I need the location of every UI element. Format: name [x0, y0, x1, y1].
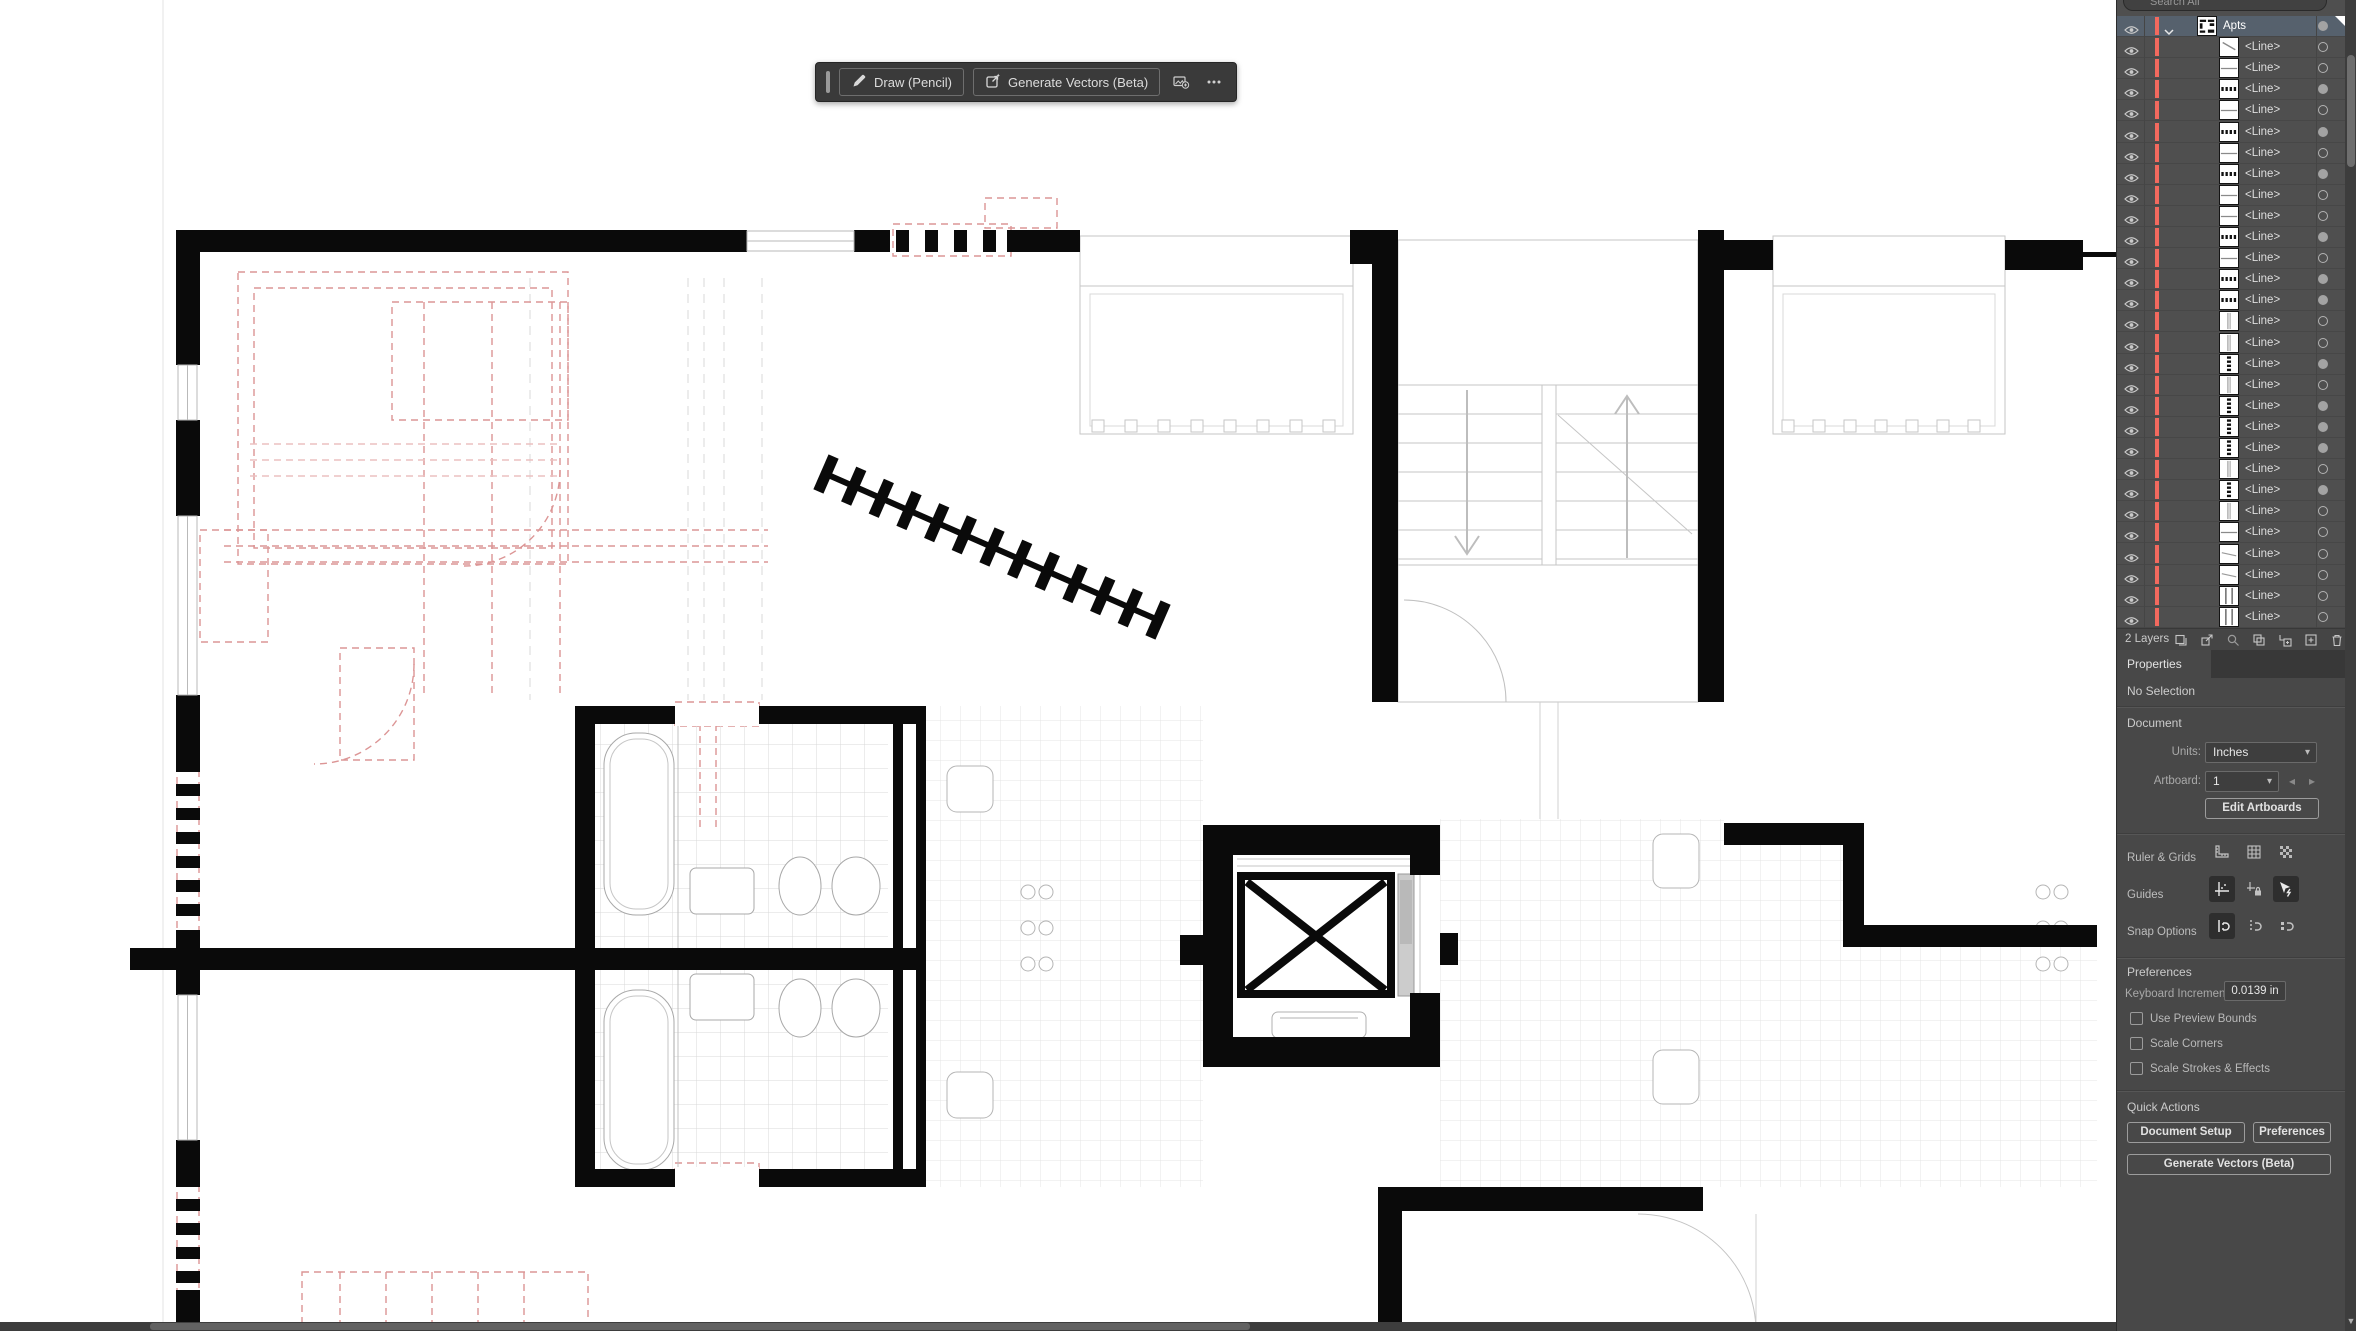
- add-image-icon[interactable]: [1169, 69, 1193, 95]
- collect-for-export-icon[interactable]: [2173, 632, 2189, 648]
- layer-color-bar: [2155, 439, 2159, 457]
- draw-pencil-button[interactable]: Draw (Pencil): [839, 68, 964, 96]
- layer-row[interactable]: <Line>: [2117, 354, 2345, 375]
- canvas-hscrollbar-track[interactable]: [0, 1322, 2116, 1331]
- layer-name[interactable]: <Line>: [2245, 231, 2280, 243]
- layer-color-bar: [2155, 418, 2159, 436]
- layer-color-bar: [2155, 376, 2159, 394]
- layer-target-circle[interactable]: [2318, 84, 2328, 94]
- layer-target-circle[interactable]: [2318, 485, 2328, 495]
- layer-target-circle[interactable]: [2318, 253, 2328, 263]
- edit-artboards-button[interactable]: Edit Artboards: [2205, 798, 2319, 819]
- layer-thumbnail[interactable]: [2219, 459, 2239, 479]
- layer-color-bar: [2155, 523, 2159, 541]
- layer-row[interactable]: <Line>: [2117, 522, 2345, 543]
- layer-name[interactable]: <Line>: [2245, 442, 2280, 454]
- layer-target-circle[interactable]: [2318, 42, 2328, 52]
- layer-target-circle[interactable]: [2318, 169, 2328, 179]
- layer-row[interactable]: <Line>: [2117, 269, 2345, 290]
- more-options-icon[interactable]: [1202, 69, 1226, 95]
- use-preview-bounds-label: Use Preview Bounds: [2150, 1013, 2257, 1025]
- toolbar-drag-handle[interactable]: [826, 71, 830, 93]
- corridor-door: [1638, 1214, 1756, 1331]
- layer-color-bar: [2155, 144, 2159, 162]
- prev-artboard-icon[interactable]: ◂: [2289, 774, 2295, 788]
- layer-row-apts[interactable]: Apts: [2117, 16, 2345, 37]
- layer-name[interactable]: <Line>: [2245, 147, 2280, 159]
- layer-thumbnail[interactable]: [2219, 586, 2239, 606]
- layer-row[interactable]: <Line>: [2117, 375, 2345, 396]
- layer-name[interactable]: <Line>: [2245, 421, 2280, 433]
- layer-color-bar: [2155, 608, 2159, 626]
- snap-to-pixel-icon[interactable]: [2273, 913, 2299, 939]
- layer-thumbnail[interactable]: [2219, 37, 2239, 57]
- units-select[interactable]: Inches▾: [2205, 742, 2317, 763]
- generate-vectors-quick-button[interactable]: Generate Vectors (Beta): [2127, 1154, 2331, 1175]
- document-setup-button[interactable]: Document Setup: [2127, 1122, 2245, 1143]
- scale-strokes-effects-label: Scale Strokes & Effects: [2150, 1063, 2270, 1075]
- guides-label: Guides: [2127, 889, 2163, 901]
- layer-color-bar: [2155, 502, 2159, 520]
- pencil-icon: [851, 73, 867, 92]
- layer-name[interactable]: <Line>: [2245, 189, 2280, 201]
- layer-row[interactable]: <Line>: [2117, 438, 2345, 459]
- snap-options-label: Snap Options: [2127, 926, 2197, 938]
- layer-target-circle[interactable]: [2318, 316, 2328, 326]
- layer-target-circle[interactable]: [2318, 232, 2328, 242]
- tab-properties[interactable]: Properties: [2117, 650, 2211, 678]
- layer-row[interactable]: <Line>: [2117, 248, 2345, 269]
- underlay-gray-dashed: [530, 278, 762, 700]
- layer-row[interactable]: <Line>: [2117, 396, 2345, 417]
- layer-row[interactable]: <Line>: [2117, 586, 2345, 607]
- delete-icon[interactable]: [2329, 632, 2345, 648]
- layer-target-circle[interactable]: [2318, 612, 2328, 622]
- draw-pencil-label: Draw (Pencil): [874, 75, 952, 90]
- panel-tabstrip: Properties: [2117, 650, 2356, 678]
- layer-color-bar: [2155, 186, 2159, 204]
- layer-row[interactable]: <Line>: [2117, 459, 2345, 480]
- layer-target-circle[interactable]: [2318, 380, 2328, 390]
- lock-guides-icon[interactable]: [2241, 876, 2267, 902]
- layer-color-bar: [2155, 397, 2159, 415]
- layer-thumbnail[interactable]: [2219, 375, 2239, 395]
- chevron-down-icon: ▾: [2267, 772, 2272, 791]
- selection-status: No Selection: [2127, 684, 2195, 698]
- right-panel: Search All Apts<Line><Line><Line><Line><…: [2116, 0, 2356, 1331]
- layer-target-circle[interactable]: [2318, 591, 2328, 601]
- next-artboard-icon[interactable]: ▸: [2309, 774, 2315, 788]
- keyboard-increment-label: Keyboard Increment:: [2125, 988, 2232, 1000]
- layer-name[interactable]: <Line>: [2245, 379, 2280, 391]
- ruler-grids-label: Ruler & Grids: [2127, 852, 2196, 864]
- layer-color-bar: [2155, 101, 2159, 119]
- layer-name[interactable]: <Line>: [2245, 273, 2280, 285]
- layers-search-input[interactable]: Search All: [2123, 0, 2327, 11]
- layer-thumbnail[interactable]: [2219, 58, 2239, 78]
- new-layer-icon[interactable]: [2303, 632, 2319, 648]
- properties-panel: No Selection Document Units: Inches▾ Art…: [2117, 678, 2356, 1331]
- stairwell: [1398, 240, 1698, 819]
- layer-target-circle[interactable]: [2318, 401, 2328, 411]
- use-preview-bounds-checkbox[interactable]: [2130, 1012, 2143, 1025]
- stair-direction-arrows: [1455, 390, 1639, 558]
- layer-color-bar: [2155, 59, 2159, 77]
- layer-row[interactable]: <Line>: [2117, 100, 2345, 121]
- quick-actions-title: Quick Actions: [2127, 1100, 2200, 1114]
- panel-scrollbar-thumb[interactable]: [2347, 55, 2355, 167]
- layer-color-bar: [2155, 587, 2159, 605]
- layer-color-bar: [2155, 270, 2159, 288]
- draw-toolbar: Draw (Pencil) Generate Vectors (Beta): [815, 62, 1237, 102]
- layer-thumbnail[interactable]: [2219, 607, 2239, 627]
- units-label: Units:: [2117, 746, 2201, 758]
- layer-thumbnail[interactable]: [2219, 565, 2239, 585]
- artboard-label: Artboard:: [2117, 775, 2201, 787]
- layer-thumbnail[interactable]: [2219, 438, 2239, 458]
- smart-guides-icon[interactable]: [2273, 876, 2299, 902]
- layer-target-circle[interactable]: [2318, 295, 2328, 305]
- layer-thumbnail[interactable]: [2219, 248, 2239, 268]
- layer-color-bar: [2155, 165, 2159, 183]
- layer-color-bar: [2155, 566, 2159, 584]
- layer-row[interactable]: <Line>: [2117, 417, 2345, 438]
- layers-column-divider: [2144, 16, 2145, 628]
- layer-row[interactable]: <Line>: [2117, 79, 2345, 100]
- layer-row[interactable]: <Line>: [2117, 164, 2345, 185]
- layer-name[interactable]: <Line>: [2245, 168, 2280, 180]
- layer-color-bar: [2155, 481, 2159, 499]
- layer-thumbnail[interactable]: [2219, 311, 2239, 331]
- layer-target-circle[interactable]: [2318, 63, 2328, 73]
- layer-name[interactable]: <Line>: [2245, 505, 2280, 517]
- layer-row[interactable]: <Line>: [2117, 227, 2345, 248]
- layer-thumbnail[interactable]: [2219, 417, 2239, 437]
- layer-color-bar: [2155, 17, 2159, 35]
- layer-thumbnail[interactable]: [2219, 354, 2239, 374]
- layer-row[interactable]: <Line>: [2117, 607, 2345, 628]
- layer-row[interactable]: <Line>: [2117, 311, 2345, 332]
- layer-name[interactable]: <Line>: [2245, 252, 2280, 264]
- layers-footer: 2 Layers: [2117, 628, 2345, 651]
- scale-corners-label: Scale Corners: [2150, 1038, 2223, 1050]
- layer-color-bar: [2155, 460, 2159, 478]
- layer-thumbnail[interactable]: [2219, 143, 2239, 163]
- generate-vectors-label: Generate Vectors (Beta): [1008, 75, 1148, 90]
- layer-thumbnail[interactable]: [2219, 501, 2239, 521]
- scale-corners-checkbox[interactable]: [2130, 1037, 2143, 1050]
- layers-search-wrap: Search All: [2117, 0, 2345, 14]
- locate-object-icon[interactable]: [2225, 632, 2241, 648]
- elevator: [1233, 853, 1424, 1038]
- ruler-icon[interactable]: [2209, 839, 2235, 865]
- scale-strokes-effects-checkbox[interactable]: [2130, 1062, 2143, 1075]
- layer-thumbnail[interactable]: [2219, 122, 2239, 142]
- floor-plan-canvas[interactable]: [0, 0, 2356, 1331]
- divider: [2117, 957, 2345, 959]
- layers-column-divider: [2316, 16, 2317, 628]
- preferences-section-title: Preferences: [2127, 965, 2192, 979]
- layer-name[interactable]: <Line>: [2245, 62, 2280, 74]
- layer-name[interactable]: <Line>: [2245, 210, 2280, 222]
- layer-color-bar: [2155, 355, 2159, 373]
- layer-target-circle[interactable]: [2318, 21, 2328, 31]
- layer-row[interactable]: <Line>: [2117, 565, 2345, 586]
- layer-name[interactable]: <Line>: [2245, 104, 2280, 116]
- layer-color-bar: [2155, 545, 2159, 563]
- layer-thumbnail[interactable]: [2219, 185, 2239, 205]
- layer-color-bar: [2155, 312, 2159, 330]
- layer-target-circle[interactable]: [2318, 105, 2328, 115]
- stair-door-swing: [1404, 600, 1506, 702]
- layer-thumbnail[interactable]: [2219, 333, 2239, 353]
- layer-name[interactable]: Apts: [2223, 20, 2246, 32]
- layer-row[interactable]: <Line>: [2117, 37, 2345, 58]
- layer-name[interactable]: <Line>: [2245, 83, 2280, 95]
- layer-color-bar: [2155, 334, 2159, 352]
- layer-target-circle[interactable]: [2318, 464, 2328, 474]
- layer-count-status: 2 Layers: [2125, 633, 2169, 645]
- layer-color-bar: [2155, 207, 2159, 225]
- layer-name[interactable]: <Line>: [2245, 358, 2280, 370]
- layer-target-circle[interactable]: [2318, 549, 2328, 559]
- layer-name[interactable]: <Line>: [2245, 41, 2280, 53]
- layer-target-circle[interactable]: [2318, 148, 2328, 158]
- canvas-hscrollbar-thumb[interactable]: [150, 1323, 1250, 1330]
- layer-name[interactable]: <Line>: [2245, 315, 2280, 327]
- layer-target-circle[interactable]: [2318, 211, 2328, 221]
- layer-row[interactable]: <Line>: [2117, 544, 2345, 565]
- snap-to-grid-icon[interactable]: [2241, 913, 2267, 939]
- layer-color-bar: [2155, 249, 2159, 267]
- export-icon[interactable]: [2199, 632, 2215, 648]
- layer-name[interactable]: <Line>: [2245, 400, 2280, 412]
- make-clipping-mask-icon[interactable]: [2251, 632, 2267, 648]
- layer-name[interactable]: <Line>: [2245, 569, 2280, 581]
- layer-thumbnail[interactable]: [2197, 16, 2217, 36]
- preferences-button[interactable]: Preferences: [2253, 1122, 2331, 1143]
- layer-thumbnail[interactable]: [2219, 290, 2239, 310]
- generate-vectors-button[interactable]: Generate Vectors (Beta): [973, 68, 1160, 96]
- layer-target-circle[interactable]: [2318, 274, 2328, 284]
- layer-target-circle[interactable]: [2318, 190, 2328, 200]
- layer-thumbnail[interactable]: [2219, 480, 2239, 500]
- new-sublayer-icon[interactable]: [2277, 632, 2293, 648]
- layer-row[interactable]: <Line>: [2117, 185, 2345, 206]
- layer-name[interactable]: <Line>: [2245, 337, 2280, 349]
- layer-row[interactable]: <Line>: [2117, 206, 2345, 227]
- layer-thumbnail[interactable]: [2219, 396, 2239, 416]
- layer-row[interactable]: <Line>: [2117, 501, 2345, 522]
- current-layer-indicator: [2335, 16, 2345, 26]
- layer-name[interactable]: <Line>: [2245, 611, 2280, 623]
- layer-target-circle[interactable]: [2318, 422, 2328, 432]
- transparency-grid-icon[interactable]: [2273, 839, 2299, 865]
- document-section-title: Document: [2127, 716, 2182, 730]
- layer-target-circle[interactable]: [2318, 359, 2328, 369]
- layer-color-bar: [2155, 80, 2159, 98]
- artboard-select[interactable]: 1▾: [2205, 771, 2279, 792]
- layer-thumbnail[interactable]: [2219, 100, 2239, 120]
- layer-target-circle[interactable]: [2318, 506, 2328, 516]
- layer-color-bar: [2155, 123, 2159, 141]
- layer-color-bar: [2155, 291, 2159, 309]
- layer-row[interactable]: <Line>: [2117, 58, 2345, 79]
- layers-list: Apts<Line><Line><Line><Line><Line><Line>…: [2117, 16, 2345, 628]
- layer-row[interactable]: <Line>: [2117, 143, 2345, 164]
- scroll-down-icon[interactable]: ▼: [2345, 1312, 2356, 1331]
- layer-row[interactable]: <Line>: [2117, 290, 2345, 311]
- chevron-down-icon: ▾: [2305, 743, 2310, 762]
- layer-row[interactable]: <Line>: [2117, 480, 2345, 501]
- divider: [2117, 706, 2345, 708]
- snap-to-point-icon[interactable]: [2209, 913, 2235, 939]
- layer-name[interactable]: <Line>: [2245, 294, 2280, 306]
- divider: [2117, 833, 2345, 835]
- layer-name[interactable]: <Line>: [2245, 548, 2280, 560]
- layer-thumbnail[interactable]: [2219, 227, 2239, 247]
- layer-name[interactable]: <Line>: [2245, 526, 2280, 538]
- layer-thumbnail[interactable]: [2219, 79, 2239, 99]
- generate-vectors-icon: [985, 73, 1001, 92]
- layer-thumbnail[interactable]: [2219, 269, 2239, 289]
- layer-color-bar: [2155, 228, 2159, 246]
- layer-color-bar: [2155, 38, 2159, 56]
- layer-target-circle[interactable]: [2318, 570, 2328, 580]
- layer-row[interactable]: <Line>: [2117, 122, 2345, 143]
- grid-icon[interactable]: [2241, 839, 2267, 865]
- layer-target-circle[interactable]: [2318, 127, 2328, 137]
- panel-scrollbar-track[interactable]: [2345, 0, 2356, 1331]
- layer-name[interactable]: <Line>: [2245, 484, 2280, 496]
- layer-thumbnail[interactable]: [2219, 544, 2239, 564]
- keyboard-increment-input[interactable]: 0.0139 in: [2224, 981, 2286, 1001]
- layer-row[interactable]: <Line>: [2117, 333, 2345, 354]
- show-guides-icon[interactable]: [2209, 876, 2235, 902]
- layer-thumbnail[interactable]: [2219, 206, 2239, 226]
- layer-thumbnail[interactable]: [2219, 522, 2239, 542]
- layer-target-circle[interactable]: [2318, 443, 2328, 453]
- layer-name[interactable]: <Line>: [2245, 463, 2280, 475]
- layer-target-circle[interactable]: [2318, 527, 2328, 537]
- layer-target-circle[interactable]: [2318, 338, 2328, 348]
- layer-thumbnail[interactable]: [2219, 164, 2239, 184]
- pencil-stroke[interactable]: [818, 457, 1165, 638]
- layer-name[interactable]: <Line>: [2245, 126, 2280, 138]
- layer-name[interactable]: <Line>: [2245, 590, 2280, 602]
- divider: [2117, 1090, 2345, 1092]
